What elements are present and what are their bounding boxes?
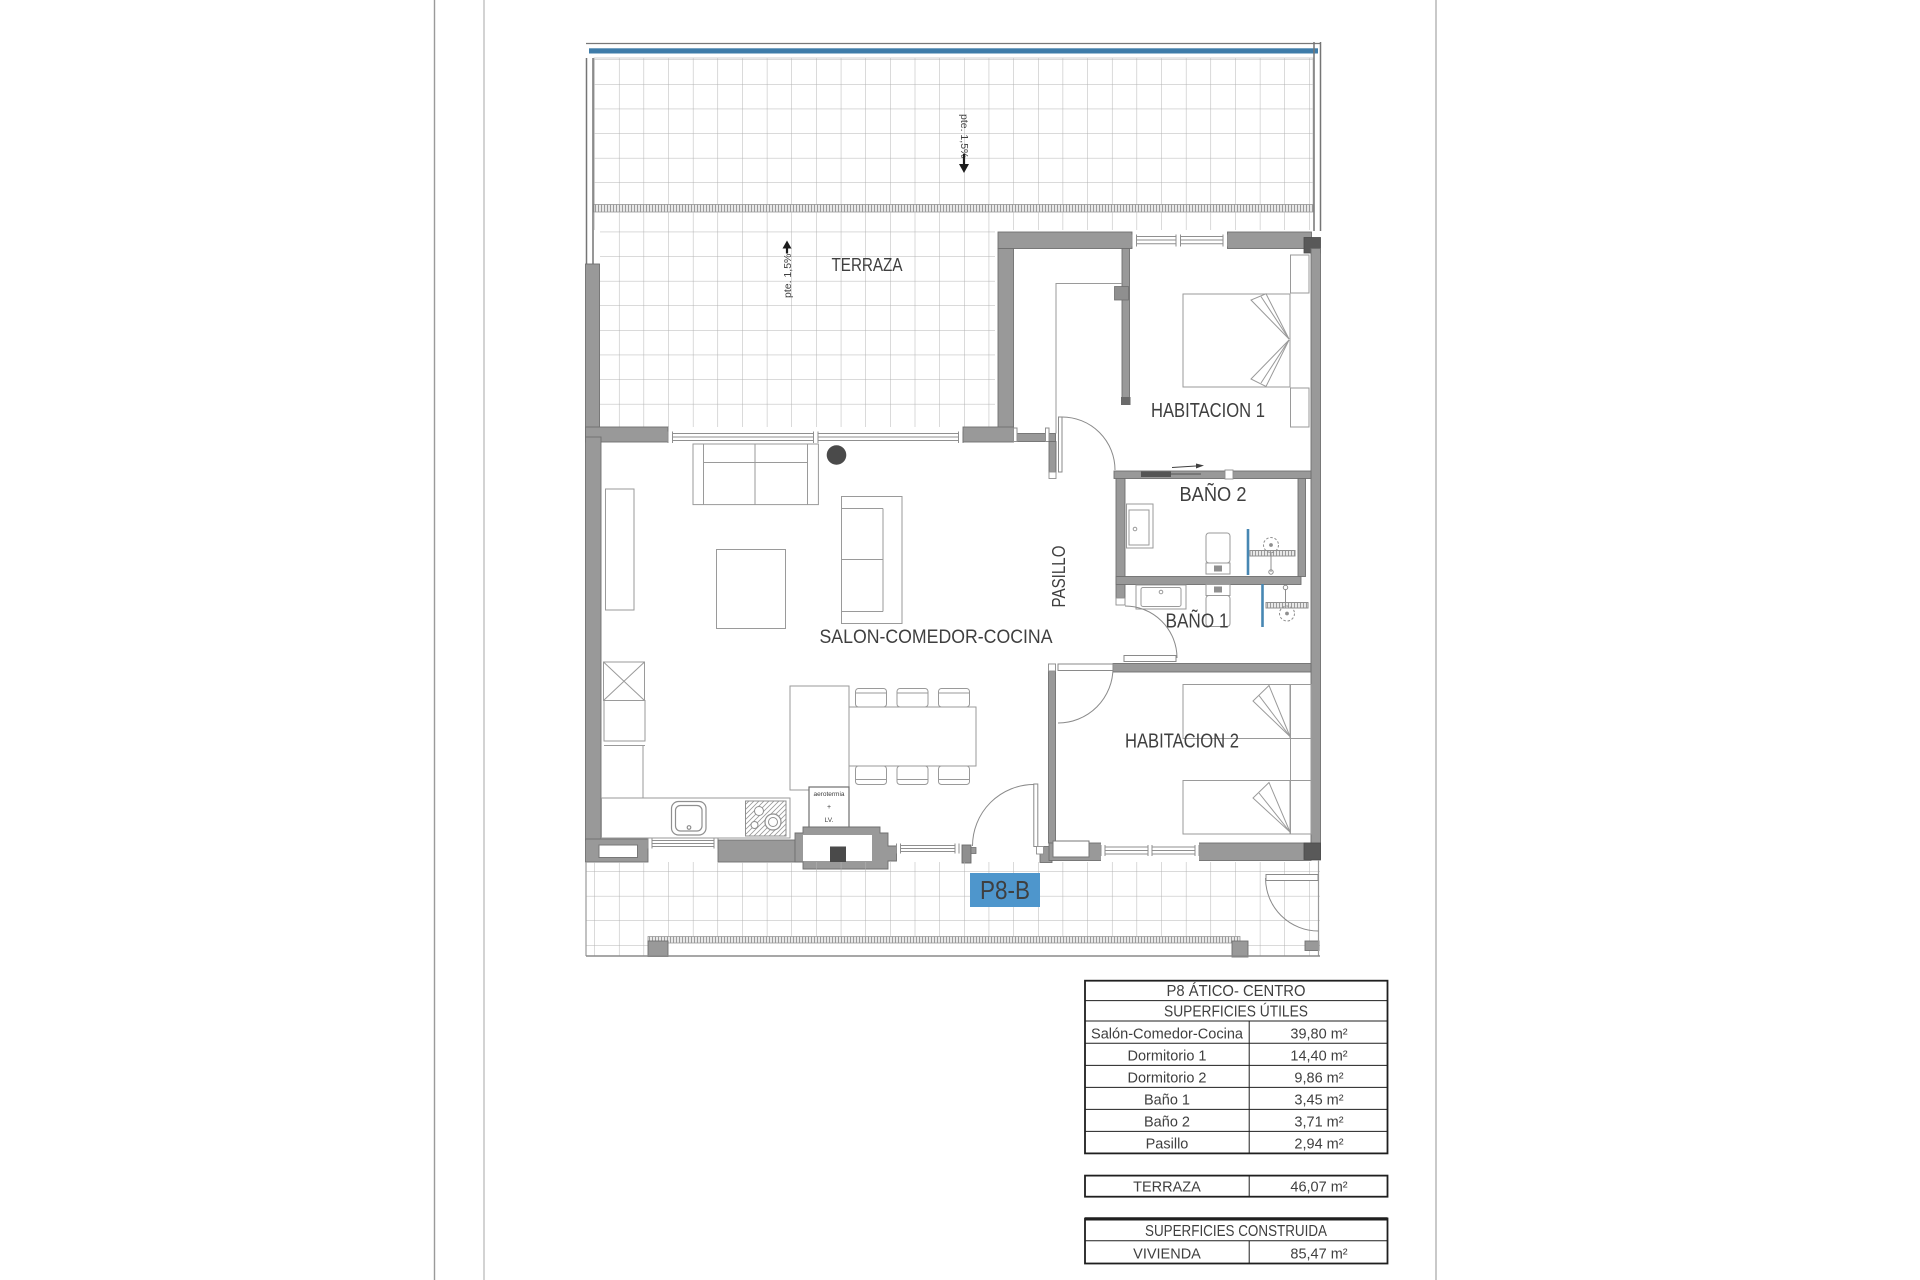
svg-text:14,40 m²: 14,40 m² <box>1290 1049 1347 1065</box>
svg-text:P8-B: P8-B <box>980 875 1030 905</box>
svg-text:TERRAZA: TERRAZA <box>1133 1180 1201 1196</box>
svg-text:39,80 m²: 39,80 m² <box>1290 1027 1347 1043</box>
svg-text:BAÑO 1: BAÑO 1 <box>1166 609 1229 633</box>
svg-text:HABITACION 1: HABITACION 1 <box>1151 400 1265 422</box>
svg-text:HABITACION 2: HABITACION 2 <box>1125 731 1239 753</box>
svg-text:46,07 m²: 46,07 m² <box>1290 1180 1347 1196</box>
svg-text:Baño 1: Baño 1 <box>1144 1093 1190 1109</box>
svg-text:SUPERFICIES CONSTRUIDA: SUPERFICIES CONSTRUIDA <box>1145 1223 1328 1240</box>
svg-text:pte. 1,5%: pte. 1,5% <box>782 254 794 298</box>
svg-text:3,71 m²: 3,71 m² <box>1294 1115 1343 1131</box>
svg-text:SUPERFICIES ÚTILES: SUPERFICIES ÚTILES <box>1164 1004 1308 1021</box>
svg-text:VIVIENDA: VIVIENDA <box>1133 1247 1201 1263</box>
svg-text:2,94 m²: 2,94 m² <box>1294 1137 1343 1153</box>
svg-text:Salón-Comedor-Cocina: Salón-Comedor-Cocina <box>1091 1027 1244 1043</box>
svg-text:Baño 2: Baño 2 <box>1144 1115 1190 1131</box>
svg-text:Pasillo: Pasillo <box>1146 1137 1189 1153</box>
svg-text:TERRAZA: TERRAZA <box>832 255 903 275</box>
svg-text:pte. 1,5%: pte. 1,5% <box>958 114 970 158</box>
svg-text:9,86 m²: 9,86 m² <box>1294 1071 1343 1087</box>
svg-text:3,45 m²: 3,45 m² <box>1294 1093 1343 1109</box>
svg-text:+: + <box>827 804 831 811</box>
svg-text:P8 ÁTICO- CENTRO: P8 ÁTICO- CENTRO <box>1167 983 1306 1000</box>
svg-text:BAÑO 2: BAÑO 2 <box>1180 482 1247 506</box>
svg-text:LV.: LV. <box>825 817 834 824</box>
svg-text:Dormitorio 2: Dormitorio 2 <box>1128 1071 1207 1087</box>
svg-text:85,47 m²: 85,47 m² <box>1290 1247 1347 1263</box>
svg-text:PASILLO: PASILLO <box>1049 546 1069 608</box>
svg-text:SALON-COMEDOR-COCINA: SALON-COMEDOR-COCINA <box>820 627 1053 648</box>
svg-text:aerotermia: aerotermia <box>813 791 844 798</box>
svg-text:Dormitorio 1: Dormitorio 1 <box>1128 1049 1207 1065</box>
